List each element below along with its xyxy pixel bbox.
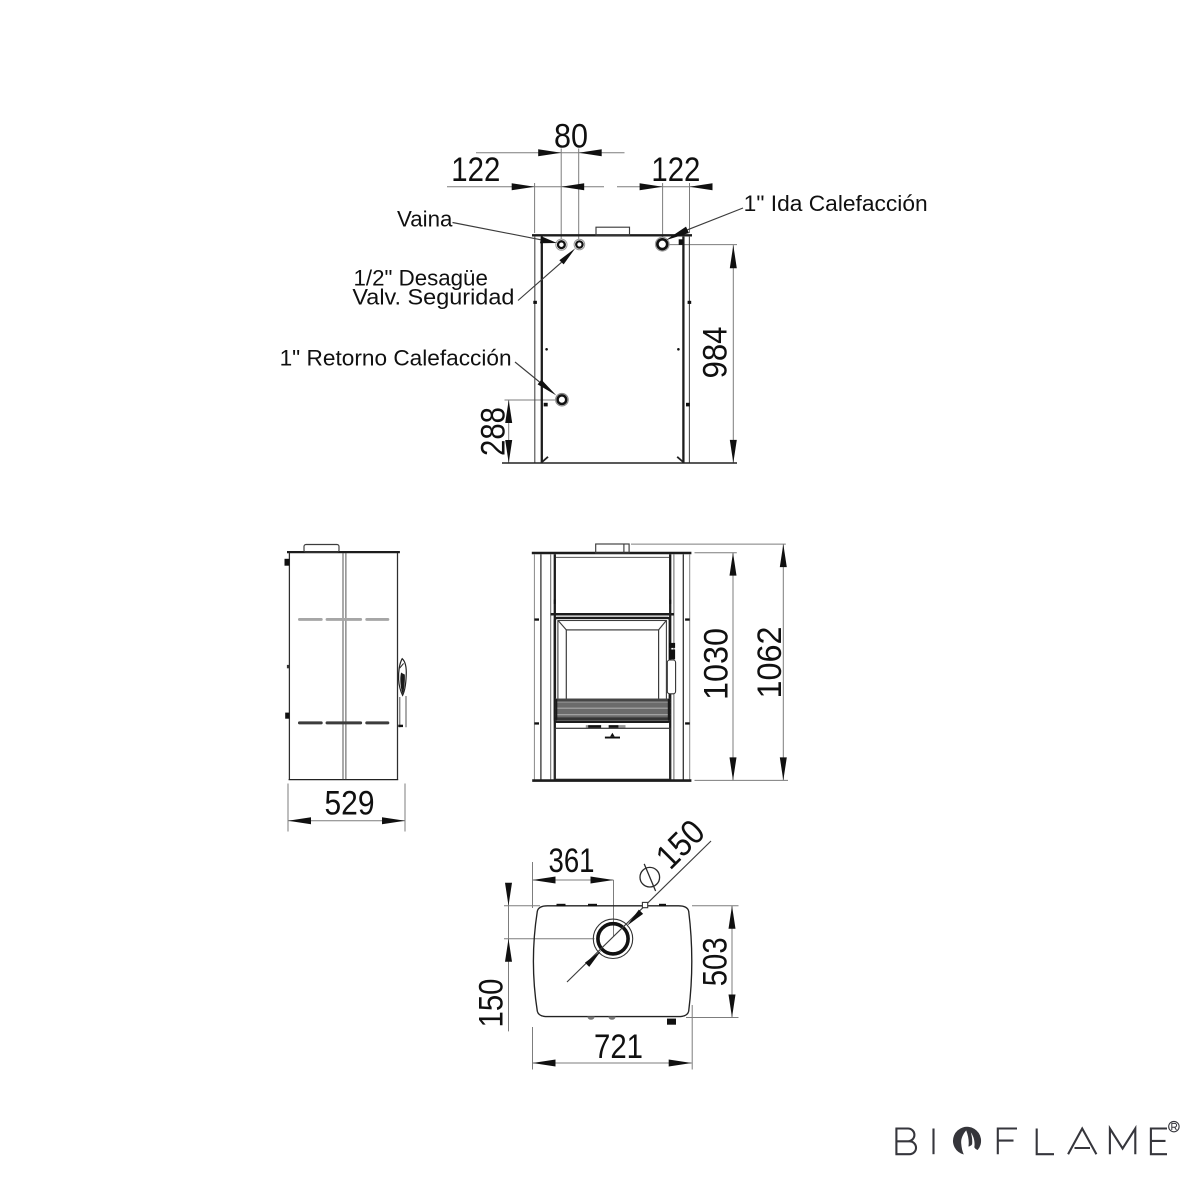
svg-text:122: 122 xyxy=(451,151,500,189)
svg-text:122: 122 xyxy=(651,151,700,189)
svg-text:1030: 1030 xyxy=(698,628,736,700)
svg-text:Valv. Seguridad: Valv. Seguridad xyxy=(352,284,514,309)
svg-text:150: 150 xyxy=(473,979,511,1028)
svg-text:1" Retorno Calefacción: 1" Retorno Calefacción xyxy=(280,346,512,371)
svg-text:80: 80 xyxy=(554,118,588,156)
svg-text:721: 721 xyxy=(594,1028,643,1066)
svg-text:1062: 1062 xyxy=(751,627,789,699)
svg-text:1" Ida Calefacción: 1" Ida Calefacción xyxy=(744,191,928,216)
svg-text:288: 288 xyxy=(475,407,513,456)
svg-text:Vaina: Vaina xyxy=(397,207,453,232)
svg-text:503: 503 xyxy=(697,937,735,986)
svg-text:529: 529 xyxy=(325,784,375,822)
svg-text:361: 361 xyxy=(549,842,595,880)
svg-text:984: 984 xyxy=(697,327,735,379)
